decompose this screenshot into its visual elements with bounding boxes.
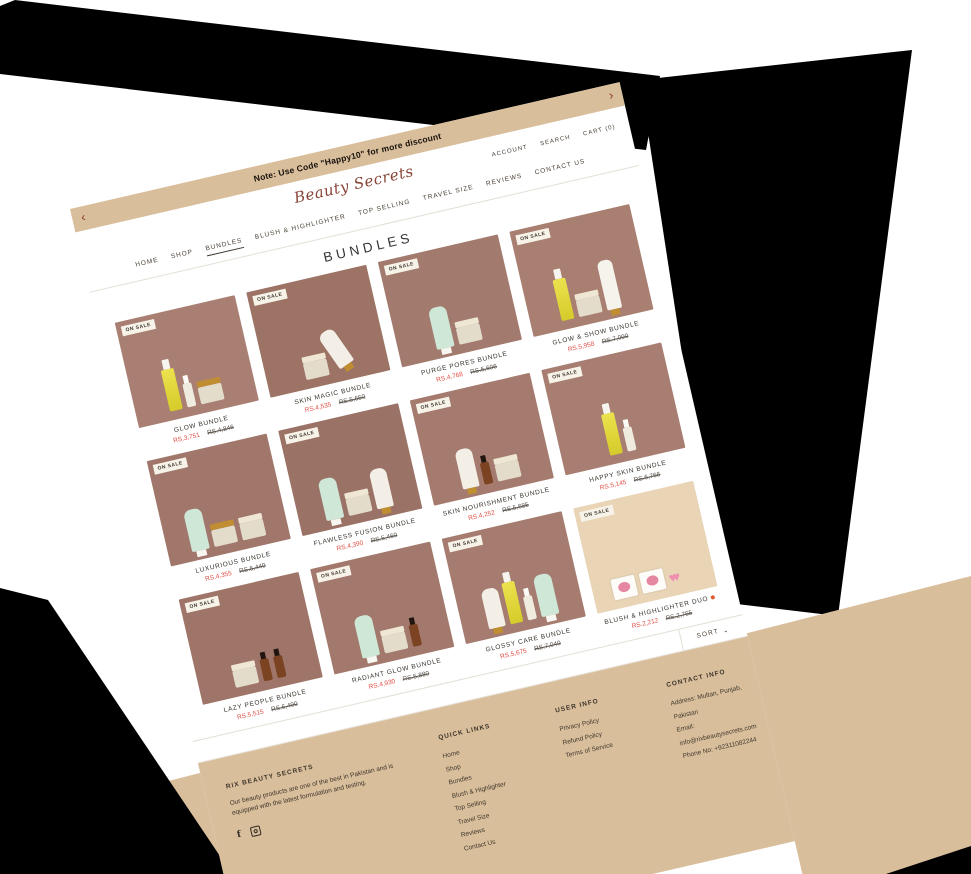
product-card[interactable]: ON SALE BLUSH & HIGHLIGHTER DUO RS.2,212… [573,481,723,637]
product-card[interactable]: ON SALE GLOW & SHOW BUNDLE RS.5,958 RS.7… [509,204,659,360]
on-sale-badge: ON SALE [416,397,451,414]
product-card[interactable]: ON SALE LAZY PEOPLE BUNDLE RS.5,515 RS.6… [179,572,329,728]
canvas: ‹ Note: Use Code "Happy10" for more disc… [0,0,971,874]
cream-jar [494,460,521,482]
on-sale-badge: ON SALE [316,565,351,582]
mint-tube [317,476,344,521]
cream-jar [456,323,483,345]
product-photo-shapes [128,351,257,420]
on-sale-badge: ON SALE [515,228,550,245]
mint-tube [428,305,455,350]
cream-jar [302,358,329,380]
product-card[interactable]: ON SALE LUXURIOUS BUNDLE RS.4,355 RS.5,4… [147,434,297,590]
announcement-prev-icon[interactable]: ‹ [79,208,87,227]
product-photo: ON SALE [310,542,454,675]
cream-jar [381,632,408,654]
product-photo-shapes [160,489,289,558]
product-card[interactable]: ON SALE RADIANT GLOW BUNDLE RS.4,930 RS.… [310,542,460,698]
sort-label: SORT [696,628,720,640]
product-photo-shapes [554,398,683,467]
yellow-serum-bottle [501,581,523,625]
product-photo: ON SALE [278,403,422,536]
on-sale-badge: ON SALE [448,535,483,552]
cream-jar [575,295,602,317]
on-sale-badge: ON SALE [547,366,582,383]
footer-brand-column: RIX BEAUTY SECRETS Our beauty products a… [225,735,465,874]
blush-compact [610,575,638,601]
white-tube [368,467,394,510]
product-card[interactable]: ON SALE GLOW BUNDLE RS.3,751 RS.4,846 [115,295,265,451]
on-sale-badge: ON SALE [252,289,287,306]
yellow-serum-bottle [160,368,182,412]
white-tube [454,447,480,490]
product-photo-shapes [423,430,552,497]
amber-dropper [259,658,273,681]
product-photo: ON SALE [246,265,390,398]
blush-compact [638,568,666,594]
mint-tube [182,507,209,552]
on-sale-badge: ON SALE [121,319,156,336]
amber-dropper [408,624,422,647]
mint-tube [532,572,559,617]
cream-jar [239,519,266,541]
amber-dropper [479,461,493,484]
product-photo: ON SALE [179,572,323,705]
product-photo: ON SALE [573,481,717,614]
yellow-serum-bottle [601,412,623,456]
white-dropper [522,595,536,620]
chevron-down-icon: ⌄ [722,625,730,634]
product-card[interactable]: ON SALE FLAWLESS FUSION BUNDLE RS.4,390 … [278,403,428,559]
on-sale-badge: ON SALE [153,457,188,474]
product-card[interactable]: ON SALE HAPPY SKIN BUNDLE RS.5,145 RS.6,… [541,342,691,498]
footer-quick-links: HomeShopBundlesBlush & HighlighterTop Se… [441,723,582,855]
on-sale-badge: ON SALE [284,427,319,444]
on-sale-badge: ON SALE [579,505,614,522]
product-photo: ON SALE [378,234,522,367]
footer-contact-lines: Address: Multan, Punjab, PakistanEmail: … [669,680,761,763]
cream-jar [232,666,259,688]
product-photo-shapes [520,252,651,328]
product-photo: ON SALE [115,295,259,428]
gold-jar [197,383,224,405]
amber-dropper [272,655,286,678]
white-dropper [182,382,196,407]
product-photo: ON SALE [541,342,685,475]
product-photo-shapes [455,567,584,636]
color-swatch-icon [711,595,716,600]
product-card[interactable]: ON SALE SKIN MAGIC BUNDLE RS.4,535 RS.5,… [246,265,396,421]
yellow-serum-bottle [552,277,574,321]
product-photo: ON SALE [410,373,554,506]
mint-tube [353,614,380,659]
product-photo-shapes [391,290,520,359]
product-card[interactable]: ON SALE GLOSSY CARE BUNDLE RS.5,675 RS.7… [442,511,592,667]
cream-jar [345,494,372,516]
product-photo-shapes [260,322,389,389]
white-tube [480,587,506,630]
on-sale-badge: ON SALE [185,596,220,613]
announcement-next-icon[interactable]: › [607,86,615,105]
pink-hearts [666,558,697,587]
product-card[interactable]: ON SALE SKIN NOURISHMENT BUNDLE RS.4,252… [410,373,560,529]
facebook-icon[interactable]: f [236,830,242,841]
product-photo-shapes [323,597,452,666]
gold-jar [210,525,237,547]
product-photo: ON SALE [509,204,653,337]
product-photo-shapes [291,459,420,528]
white-dropper [623,426,637,451]
product-photo: ON SALE [147,434,291,567]
product-photo: ON SALE [442,511,586,644]
instagram-icon[interactable] [250,825,262,837]
product-card[interactable]: ON SALE PURGE PORES BUNDLE RS.4,768 RS.5… [378,234,528,390]
on-sale-badge: ON SALE [384,258,419,275]
